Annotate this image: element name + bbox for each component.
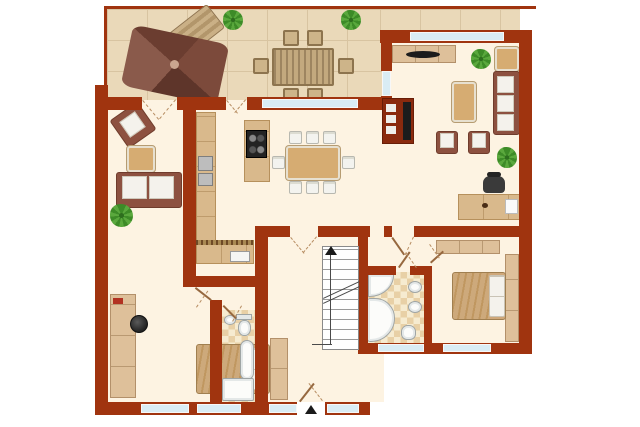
living-plant-1: [471, 49, 491, 69]
stool: [130, 315, 148, 333]
wall-hall-north-4: [414, 226, 532, 237]
stair-arrow-line: [330, 254, 331, 344]
bath-small-toilet-bowl: [238, 320, 251, 336]
terrace-plant-2: [341, 10, 361, 30]
wall-bath-center-n2: [410, 266, 424, 275]
terrace-plant-1: [223, 10, 243, 30]
dining-chair-6: [323, 181, 336, 194]
wall-kitchen-west: [183, 97, 196, 287]
dining-chair-7: [272, 156, 285, 169]
office-chair-back: [487, 172, 501, 177]
stair-up-arrow: [325, 246, 337, 255]
coffee-table: [452, 82, 476, 122]
window-bedroom-right: [443, 344, 491, 352]
dining-chair-3: [323, 131, 336, 144]
window-bottom-2: [197, 404, 241, 413]
wall-hall-north-1: [262, 226, 290, 237]
wardrobe-right-top: [436, 240, 500, 254]
bath-small-tub: [240, 340, 254, 380]
bath-center-sink-1: [408, 281, 422, 293]
patio-chair-6: [338, 58, 354, 74]
wall-bath-small-west: [210, 300, 222, 402]
sofa-right-cushion-3: [497, 114, 514, 131]
bed-right-duvet: [453, 273, 489, 319]
wall-terrace-1: [104, 97, 142, 110]
wall-hall-north-2: [318, 226, 370, 237]
sofa-right-cushion-1: [497, 76, 514, 93]
parasol-pole: [170, 60, 179, 69]
wall-bath-center-n1: [368, 266, 396, 275]
cooktop: [246, 130, 267, 158]
wardrobe-left: [110, 294, 136, 398]
armchair-2-cushion: [472, 133, 486, 148]
wall-hall-north-3: [384, 226, 392, 237]
kitchen-sink-2: [198, 173, 213, 186]
wall-kitchen-south: [196, 276, 257, 287]
wall-outer-right: [519, 30, 532, 354]
window-terrace: [262, 99, 358, 108]
dining-table: [286, 146, 340, 180]
window-bath-center: [378, 344, 424, 352]
bath-center-toilet: [401, 325, 416, 340]
window-bottom-4: [327, 404, 359, 413]
entrance-arrow: [305, 405, 317, 414]
living-plant-2: [497, 147, 517, 168]
side-table: [127, 146, 155, 172]
headboard-unit: [270, 338, 288, 400]
tv-shelf-3: [386, 126, 396, 134]
kitchen-sink-1: [198, 156, 213, 171]
kitchen-counter-edge: [196, 240, 254, 245]
patio-chair-5: [253, 58, 269, 74]
dining-chair-8: [342, 156, 355, 169]
tv-shelf-2: [386, 115, 396, 123]
wardrobe-accent: [113, 298, 123, 304]
wall-living-left-a: [381, 43, 392, 71]
tv-shelf-1: [386, 104, 396, 112]
dining-chair-1: [289, 131, 302, 144]
wardrobe-right-side: [505, 254, 519, 342]
dining-chair-4: [289, 181, 302, 194]
living-side-table: [495, 47, 519, 71]
sitting-area-plant: [110, 204, 133, 227]
bath-small-shower: [222, 378, 254, 401]
patio-chair-1: [283, 30, 299, 46]
tv-screen: [403, 102, 411, 140]
sofa-left-cushion-2: [149, 176, 174, 199]
patio-chair-2: [307, 30, 323, 46]
wall-outer-left: [95, 85, 108, 415]
wall-bath-small-east: [255, 304, 268, 402]
sofa-left-cushion-1: [122, 176, 147, 199]
staircase: [322, 246, 359, 350]
stair-arrow-foot: [312, 344, 332, 345]
dining-chair-2: [306, 131, 319, 144]
wall-outer-bottom-a: [95, 402, 297, 415]
patio-table: [272, 48, 334, 86]
wall-stair-east: [358, 237, 368, 343]
window-bottom-3: [269, 404, 297, 413]
window-living-left: [382, 71, 391, 96]
bed-right-pillows: [489, 275, 505, 317]
window-living-top: [410, 32, 504, 41]
dining-chair-5: [306, 181, 319, 194]
desk-paper: [505, 199, 518, 214]
terrace-edge-top: [104, 6, 536, 9]
wall-bath-center-east: [424, 266, 432, 343]
bath-center-sink-2: [408, 301, 422, 313]
sofa-right-cushion-2: [497, 95, 514, 112]
hifi-unit: [406, 51, 440, 58]
wall-mid-stub: [255, 287, 268, 304]
office-chair: [483, 176, 505, 193]
armchair-1-cushion: [440, 133, 454, 148]
floor-plan: [0, 0, 640, 427]
desk-dot: [482, 203, 488, 208]
window-bottom-1: [141, 404, 189, 413]
kitchen-appliance: [230, 251, 250, 262]
